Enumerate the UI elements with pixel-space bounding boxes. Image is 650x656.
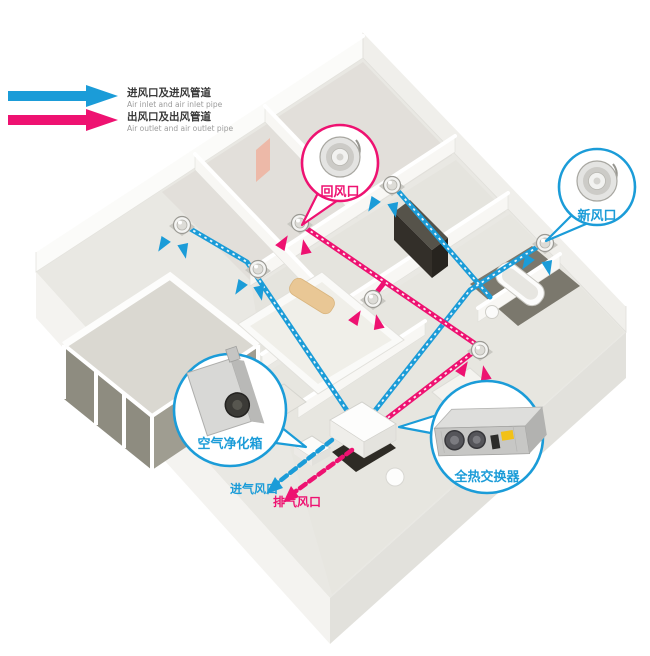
inlet-arrow-icon <box>8 85 118 107</box>
legend-inlet-label: 进风口及进风管道 <box>127 86 211 99</box>
return-air-vent-label: 回风口 <box>320 185 359 200</box>
toilet <box>486 306 499 319</box>
legend-outlet-sublabel: Air outlet and air outlet pipe <box>127 124 234 133</box>
isometric-apartment-illustration: 回风口 新风口 空气净化箱 <box>0 0 650 656</box>
outlet-arrow-icon <box>8 109 118 131</box>
apartment-model <box>36 30 626 644</box>
exhaust-vent-label: 排气风口 <box>273 494 321 509</box>
fresh-air-system-diagram: 回风口 新风口 空气净化箱 <box>0 0 650 656</box>
legend-outlet-label: 出风口及出风管道 <box>127 110 211 123</box>
coffee-table <box>386 468 404 486</box>
air-purifier-label: 空气净化箱 <box>197 436 262 452</box>
heat-exchanger-label: 全热交换器 <box>453 469 520 485</box>
round-diffuser-icon <box>577 161 617 201</box>
intake-vent-label: 进气风口 <box>230 481 278 496</box>
legend: 进风口及进风管道 Air inlet and air inlet pipe 出风… <box>8 85 234 133</box>
callout-fresh-air-vent: 新风口 <box>546 149 635 241</box>
legend-inlet-sublabel: Air inlet and air inlet pipe <box>127 100 223 109</box>
fresh-air-vent-label: 新风口 <box>577 208 616 224</box>
round-diffuser-icon <box>320 137 360 177</box>
